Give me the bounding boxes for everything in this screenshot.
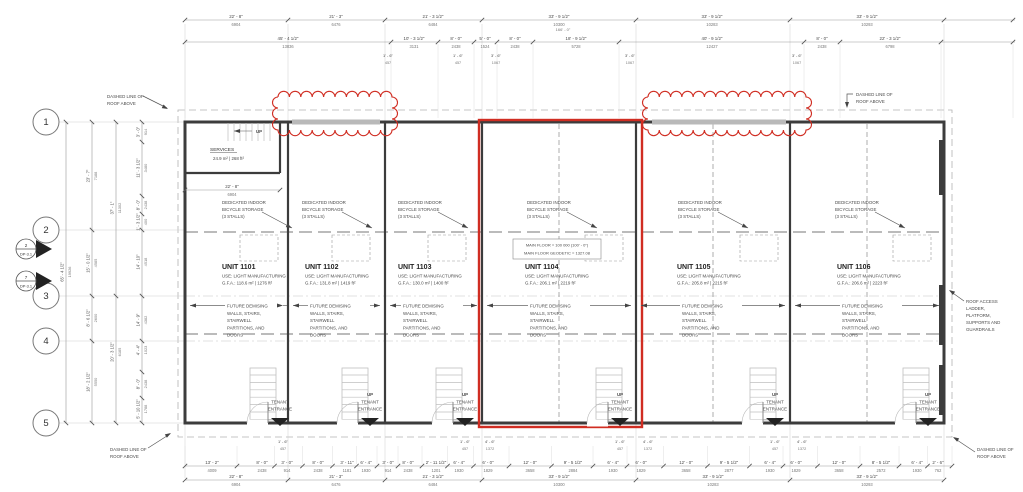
dimension-label-mm: 12427	[706, 44, 718, 49]
tenant-entrance-label: TENANT	[611, 400, 629, 405]
door-opening	[895, 420, 916, 427]
dimension-label-mm: 1067	[492, 61, 500, 65]
dimension-label-feet: 6' - 4"	[764, 460, 776, 465]
up-label: UP	[367, 392, 373, 397]
bike-storage-note: DEDICATED INDOOR	[398, 200, 442, 205]
exterior-wall	[185, 122, 944, 423]
door-opening	[337, 420, 358, 427]
future-demising-note: WALLS, STAIRS,	[403, 311, 437, 316]
dimension-label-mm: 10283	[707, 482, 719, 487]
dimension-label-feet: 33' - 9 1/2"	[549, 474, 570, 479]
dimension-label-feet: 12' - 0"	[832, 460, 846, 465]
unit-name-label: UNIT 1105	[677, 264, 711, 271]
bike-storage-note: DEDICATED INDOOR	[835, 200, 879, 205]
dimension-label-mm: 1930	[361, 468, 371, 473]
dimension-label-feet: 8' - 0"	[136, 378, 141, 389]
main-floor-note: MAIN FLOOR GEODETIC = 1327.08	[524, 251, 591, 256]
unit-name-label: UNIT 1106	[837, 264, 871, 271]
grid-bubble-number: 5	[43, 418, 48, 429]
dimension-label-feet: 14' - 10"	[136, 254, 141, 270]
dimension-label-feet: 6' - 4"	[607, 460, 619, 465]
dimension-label-mm: 457	[455, 61, 461, 65]
dimension-label-feet: 13' - 2"	[205, 460, 219, 465]
dimension-label-feet: 4' - 6"	[485, 439, 496, 444]
dimension-label-mm: 4009	[207, 468, 217, 473]
door-opening	[587, 420, 608, 427]
dimension-label-mm: 13836	[282, 44, 294, 49]
bike-storage-note: BICYCLE STORAGE	[678, 207, 719, 212]
dimension-label-mm: 6904	[231, 482, 241, 487]
dimension-label-mm: 400	[143, 218, 148, 225]
dimension-label-mm: 762	[935, 468, 943, 473]
bike-storage-note: DEDICATED INDOOR	[302, 200, 346, 205]
leader-arrowhead	[162, 105, 168, 109]
unit-use-label: USE: LIGHT MANUFACTURING	[525, 274, 589, 279]
dimension-label-feet: 3' - 6"	[625, 53, 636, 58]
door-opening	[432, 420, 453, 427]
dimension-label-mm: 1829	[636, 468, 646, 473]
dimension-label-feet: 5' - 0"	[479, 36, 491, 41]
floor-plan-drawing: 22' - 8"690421' - 3"647621' - 3 1/2"6484…	[0, 0, 1023, 492]
dimension-label-feet: 1' - 6"	[770, 439, 781, 444]
dimension-label-feet: 1' - 6"	[453, 53, 464, 58]
unit-gfa-label: G.F.A.: 118.6 m² | 1276 ft²	[222, 281, 273, 286]
dimension-label-feet: 2' - 6"	[932, 460, 944, 465]
unit-gfa-label: G.F.A.: 131.8 m² | 1419 ft²	[305, 281, 356, 286]
leader-arrowhead	[742, 224, 748, 228]
bike-storage-note: (3 STALLS)	[302, 214, 325, 219]
dimension-label-feet: 22' - 3 1/2"	[880, 36, 901, 41]
future-demising-note: PARTITIONS, AND	[403, 325, 440, 330]
tenant-entrance-label: ENTRANCE	[268, 407, 292, 412]
dimension-label-mm: 457	[462, 447, 468, 451]
dimension-label-mm: 1524	[480, 44, 490, 49]
dimension-label-feet: 22' - 8"	[229, 14, 243, 19]
dimension-label-feet: 1' - 3 1/2"	[136, 213, 141, 231]
dimension-label-mm: 3131	[409, 44, 419, 49]
section-marker-sheet: DP-3.1	[20, 284, 32, 289]
dimension-label-feet: 9' - 5 1/2"	[720, 460, 739, 465]
future-demising-note: DOORS	[530, 333, 546, 338]
bike-storage-note: DEDICATED INDOOR	[222, 200, 266, 205]
dimension-label-mm: 1372	[798, 447, 806, 451]
future-demising-note: FUTURE DEMISING	[842, 304, 883, 309]
tenant-entrance-label: ENTRANCE	[916, 407, 940, 412]
dimension-label-mm: 19926	[67, 267, 72, 278]
grid-lines	[59, 24, 944, 478]
dimension-label-feet: 12' - 0"	[523, 460, 537, 465]
revision-cloud	[273, 91, 398, 135]
roof-access-note: PLATFORM,	[966, 313, 991, 318]
dimension-label-feet: 3' - 11"	[340, 460, 354, 465]
leader-arrowhead	[779, 304, 785, 308]
dimension-label-feet: 15' - 0 1/2"	[86, 253, 91, 273]
bike-storage-area	[893, 235, 931, 261]
leader-arrowhead	[795, 304, 801, 308]
roof-access-note: SUPPORTS AND	[966, 320, 1000, 325]
bike-storage-area	[740, 235, 778, 261]
dimension-label-feet: 33' - 9 1/2"	[549, 14, 570, 19]
dimension-label-mm: 6476	[331, 22, 341, 27]
future-demising-note: WALLS, STAIRS,	[842, 311, 876, 316]
dimension-label-feet: 1' - 6"	[460, 439, 471, 444]
bike-storage-note: DEDICATED INDOOR	[527, 200, 571, 205]
dimension-label-feet: 8' - 0"	[312, 460, 324, 465]
unit-name-label: UNIT 1103	[398, 264, 432, 271]
dimension-label-mm: 457	[280, 447, 286, 451]
dimension-label-mm: 2438	[510, 44, 520, 49]
future-demising-note: FUTURE DEMISING	[227, 304, 268, 309]
future-demising-note: FUTURE DEMISING	[530, 304, 571, 309]
dimension-label-feet: 4' - 6"	[797, 439, 808, 444]
bike-storage-note: BICYCLE STORAGE	[398, 207, 439, 212]
dimension-label-feet: 6' - 4"	[453, 460, 465, 465]
future-demising-note: DOORS	[310, 333, 326, 338]
dimension-label-feet: 1' - 6"	[278, 439, 289, 444]
dimension-label-mm: 3658	[834, 468, 844, 473]
bike-storage-area	[332, 235, 370, 261]
dimension-label-feet: 40' - 9 1/2"	[702, 36, 723, 41]
services-label: SERVICES	[210, 147, 234, 153]
dimension-label-feet: 8' - 0"	[450, 36, 462, 41]
dimension-label-feet: 14' - 9"	[136, 313, 141, 326]
dimension-label-feet: 8' - 0"	[256, 460, 268, 465]
main-floor-note: MAIN FLOOR = 100 000 (100' - 0")	[526, 243, 589, 248]
dimension-label-mm: 6476	[331, 482, 341, 487]
up-label: UP	[462, 392, 468, 397]
dimension-label-mm: 4518	[143, 258, 148, 267]
future-demising-note: WALLS, STAIRS,	[682, 311, 716, 316]
tenant-entrance-label: ENTRANCE	[358, 407, 382, 412]
floor-plan-sheet: 22' - 8"690421' - 3"647621' - 3 1/2"6484…	[0, 0, 1023, 492]
roof-note: DASHED LINE OF	[110, 447, 147, 452]
future-demising-note: STAIRWELL	[842, 318, 867, 323]
future-demising-note: DOORS	[403, 333, 419, 338]
dimension-label-mm: 2438	[403, 468, 413, 473]
dimension-label-feet: 6' - 0"	[790, 460, 802, 465]
unit-name-label: UNIT 1102	[305, 264, 339, 271]
dimension-label-feet: 37' - 1"	[110, 201, 115, 214]
unit-use-label: USE: LIGHT MANUFACTURING	[305, 274, 369, 279]
up-label: UP	[256, 129, 262, 134]
tenant-entrance-label: ENTRANCE	[763, 407, 787, 412]
dimension-label-feet: 5' - 10 1/2"	[136, 399, 141, 419]
dimension-label-mm: 10293	[861, 482, 873, 487]
leader-arrowhead	[462, 224, 468, 228]
dimension-label-feet: 18' - 2 1/2"	[86, 372, 91, 392]
tenant-entrance-label: TENANT	[271, 400, 289, 405]
bike-storage-note: (3 STALLS)	[835, 214, 858, 219]
door-opening	[247, 420, 268, 427]
roof-note: ROOF ABOVE	[977, 454, 1006, 459]
leader-arrowhead	[591, 224, 597, 228]
unit-use-label: USE: LIGHT MANUFACTURING	[837, 274, 901, 279]
future-demising-note: DOORS	[227, 333, 243, 338]
up-label: UP	[925, 392, 931, 397]
dimension-label-feet: 12' - 0"	[679, 460, 693, 465]
dimension-label-mm: 1829	[483, 468, 493, 473]
dimension-label-feet: 3' - 0"	[281, 460, 293, 465]
dimension-label-feet: 22' - 8"	[229, 474, 243, 479]
dimension-label-mm: 1930	[912, 468, 922, 473]
dimension-label-feet: 8' - 5 1/2"	[872, 460, 891, 465]
future-demising-note: WALLS, STAIRS,	[310, 311, 344, 316]
dimension-label-mm: 457	[385, 61, 391, 65]
dimension-label-mm: 3480	[143, 163, 148, 172]
future-demising-note: STAIRWELL	[403, 318, 428, 323]
dimension-label-mm: 1930	[454, 468, 464, 473]
leader-arrowhead	[366, 224, 372, 228]
dimension-label-feet: 8' - 0"	[136, 199, 141, 210]
dimension-label-feet: 6' - 0"	[635, 460, 647, 465]
dimension-label-feet: 21' - 3 1/2"	[423, 474, 444, 479]
dimension-label-feet: 10' - 3 1/2"	[404, 36, 425, 41]
dimension-label-feet: 3' - 0"	[382, 460, 394, 465]
leader-arrowhead	[190, 304, 196, 308]
dimension-label-mm: 2600	[93, 313, 98, 322]
roof-access-note: LADDER,	[966, 306, 985, 311]
dimension-label-mm: 914	[143, 128, 148, 135]
grid-bubble-number: 2	[43, 225, 48, 236]
future-demising-note: PARTITIONS, AND	[227, 325, 264, 330]
dimension-label-feet: 22' - 8"	[225, 184, 239, 189]
future-demising-note: FUTURE DEMISING	[310, 304, 351, 309]
dimension-label-mm: 914	[385, 468, 393, 473]
unit-name-label: UNIT 1101	[222, 264, 256, 271]
tenant-entrance-label: TENANT	[361, 400, 379, 405]
dimension-label-feet: 3' - 6"	[491, 53, 502, 58]
unit-gfa-label: G.F.A.: 206.6 m² | 2223 ft²	[837, 281, 888, 286]
dimension-label-mm: 1930	[765, 468, 775, 473]
revision-cloud	[643, 91, 812, 135]
dimension-label-feet: 23' - 7"	[86, 169, 91, 182]
dimension-label-feet: 9' - 5 1/2"	[564, 460, 583, 465]
dimension-label-feet: 33' - 9 1/2"	[857, 14, 878, 19]
dimension-label-mm: 2572	[876, 468, 886, 473]
leader-arrowhead	[471, 304, 477, 308]
demising-walls	[288, 122, 790, 423]
dimension-label-mm: 1181	[343, 468, 353, 473]
generated-annotations: 22' - 8"690421' - 3"647621' - 3 1/2"6484…	[16, 14, 1015, 487]
dimension-label-mm: 1372	[644, 447, 652, 451]
future-demising-note: PARTITIONS, AND	[310, 325, 347, 330]
unit-gfa-label: G.F.A.: 205.8 m² | 2215 ft²	[677, 281, 728, 286]
dimension-label-feet: 8' - 0"	[402, 460, 414, 465]
grid-bubble-number: 3	[43, 291, 48, 302]
dimension-label-mm: 2438	[257, 468, 267, 473]
dimension-label-mm: 1788	[143, 405, 148, 414]
future-demising-note: PARTITIONS, AND	[530, 325, 567, 330]
dimension-label-feet: 21' - 3"	[329, 474, 343, 479]
bike-storage-note: (3 STALLS)	[678, 214, 701, 219]
roof-note: ROOF ABOVE	[110, 454, 139, 459]
dimension-label-feet: 6' - 4"	[911, 460, 923, 465]
bike-storage-note: BICYCLE STORAGE	[527, 207, 568, 212]
future-demising-note: WALLS, STAIRS,	[227, 311, 261, 316]
bike-storage-area	[240, 235, 278, 261]
dimension-label-feet: 33' - 9 1/2"	[702, 14, 723, 19]
dimension-label-feet: 8' - 0"	[509, 36, 521, 41]
dimension-label-feet: 8' - 0"	[816, 36, 828, 41]
future-demising-note: PARTITIONS, AND	[842, 325, 879, 330]
bike-storage-note: BICYCLE STORAGE	[222, 207, 263, 212]
future-demising-note: WALLS, STAIRS,	[530, 311, 564, 316]
dimension-label-mm: 2877	[724, 468, 734, 473]
dimension-label-mm: 1829	[791, 468, 801, 473]
dimension-label-mm: 2438	[451, 44, 461, 49]
dimension-label-mm: 10293	[861, 22, 873, 27]
grid-bubble-number: 4	[43, 336, 48, 347]
unit-gfa-label: G.F.A.: 206.1 m² | 2219 ft²	[525, 281, 576, 286]
leader-arrowhead	[487, 304, 493, 308]
dimension-label-mm: 6904	[231, 22, 241, 27]
door-opening	[742, 420, 763, 427]
dimension-label-mm: 2884	[568, 468, 578, 473]
tenant-entrance-label: ENTRANCE	[608, 407, 632, 412]
dimension-label-mm: 1067	[626, 61, 634, 65]
dimension-label-mm: 6904	[227, 192, 237, 197]
leader-arrowhead	[625, 304, 631, 308]
leader-arrowhead	[374, 304, 380, 308]
up-label: UP	[772, 392, 778, 397]
dimension-label-mm: 5550	[93, 377, 98, 386]
dimension-label-mm: 3658	[525, 468, 535, 473]
leader-arrowhead	[933, 304, 939, 308]
dimension-label-mm: 914	[284, 468, 292, 473]
dimension-label-mm: 1372	[486, 447, 494, 451]
leader-arrowhead	[293, 304, 299, 308]
dimension-label-feet: 4' - 6"	[643, 439, 654, 444]
dimension-label-mm: 6185	[117, 348, 122, 357]
bike-storage-note: BICYCLE STORAGE	[835, 207, 876, 212]
dimension-label-feet: 3' - 6"	[792, 53, 803, 58]
roof-note: ROOF ABOVE	[856, 99, 885, 104]
bike-storage-note: (3 STALLS)	[398, 214, 421, 219]
dimension-label-feet: 1' - 6"	[615, 439, 626, 444]
dimension-label-feet: 2' - 11 1/2"	[426, 460, 447, 465]
dimension-label-mm: 2438	[313, 468, 323, 473]
future-demising-note: STAIRWELL	[682, 318, 707, 323]
bike-storage-note: DEDICATED INDOOR	[678, 200, 722, 205]
roof-note: ROOF ABOVE	[107, 101, 136, 106]
future-demising-note: DOORS	[842, 333, 858, 338]
dimension-label-mm: 457	[772, 447, 778, 451]
tenant-entrance-label: TENANT	[766, 400, 784, 405]
future-demising-note: STAIRWELL	[310, 318, 335, 323]
unit-use-label: USE: LIGHT MANUFACTURING	[398, 274, 462, 279]
dimension-label-mm: 6484	[428, 482, 438, 487]
dimension-label-feet: 20' - 3 1/2"	[110, 342, 115, 362]
dimension-label-mm: 6484	[428, 22, 438, 27]
dimension-label-mm: 2438	[143, 380, 148, 389]
dimension-label-mm: 2438	[143, 201, 148, 210]
roof-access-note: GUARDRAILS	[966, 327, 995, 332]
unit-name-label: UNIT 1104	[525, 264, 559, 271]
dimension-label-mm: 10283	[706, 22, 718, 27]
dimension-label-feet: 18' - 9 1/2"	[566, 36, 587, 41]
dimension-label-feet: 11' - 3 1/2"	[136, 158, 141, 178]
dimension-label-feet: 33' - 9 1/2"	[857, 474, 878, 479]
bike-storage-note: (3 STALLS)	[527, 214, 550, 219]
future-demising-note: STAIRWELL	[227, 318, 252, 323]
dimension-label-mm: 1201	[431, 468, 441, 473]
future-demising-note: DOORS	[682, 333, 698, 338]
unit-gfa-label: G.F.A.: 130.0 m² | 1400 ft²	[398, 281, 449, 286]
dimension-label-mm: 1067	[793, 61, 801, 65]
dimension-label-feet: 33' - 9 1/2"	[703, 474, 724, 479]
leader-arrowhead	[277, 304, 283, 308]
dimension-label-mm: 4382	[143, 316, 148, 325]
dimension-label-feet: 6' - 4"	[360, 460, 372, 465]
section-marker-number: 7	[25, 275, 28, 280]
tenant-entrance-label: TENANT	[919, 400, 937, 405]
bike-storage-note: (3 STALLS)	[222, 214, 245, 219]
leader-arrowhead	[234, 129, 240, 133]
leader-arrowhead	[390, 304, 396, 308]
dimension-label-mm: 7188	[93, 172, 98, 181]
unit-use-label: USE: LIGHT MANUFACTURING	[222, 274, 286, 279]
dimension-label-feet: 6' - 0"	[482, 460, 494, 465]
roof-note: DASHED LINE OF	[977, 447, 1014, 452]
tenant-entrance-label: ENTRANCE	[453, 407, 477, 412]
dimension-label-mm: 3658	[681, 468, 691, 473]
dimension-label-mm: 1023	[143, 346, 148, 355]
roof-note: DASHED LINE OF	[107, 94, 144, 99]
dimension-label-mm: 2438	[817, 44, 827, 49]
section-marker-sheet: DP-3.1	[20, 252, 32, 257]
dimension-label-mm: 1930	[608, 468, 618, 473]
section-marker-number: 2	[25, 243, 28, 248]
unit-use-label: USE: LIGHT MANUFACTURING	[677, 274, 741, 279]
dimension-label-feet: 8' - 6 1/2"	[86, 309, 91, 327]
grid-bubble-number: 1	[43, 117, 48, 128]
future-demising-note: STAIRWELL	[530, 318, 555, 323]
leader-arrowhead	[899, 224, 905, 228]
dimension-label-feet: 21' - 3"	[329, 14, 343, 19]
leader-arrowhead	[845, 102, 849, 108]
future-demising-note: PARTITIONS, AND	[682, 325, 719, 330]
dimension-label-feet: 1' - 6"	[383, 53, 394, 58]
dimension-label-mm: 5728	[571, 44, 581, 49]
dimension-label-feet: 65' - 4 1/2"	[60, 262, 65, 282]
future-demising-note: FUTURE DEMISING	[682, 304, 723, 309]
roof-note: DASHED LINE OF	[856, 92, 893, 97]
dimension-overall: 166' - 0"	[556, 27, 571, 32]
dimension-label-mm: 11302	[117, 203, 122, 214]
bike-storage-note: BICYCLE STORAGE	[302, 207, 343, 212]
dimension-label-mm: 457	[617, 447, 623, 451]
dimension-label-mm: 6798	[885, 44, 895, 49]
dimension-label-feet: 3' - 0"	[136, 126, 141, 137]
up-label: UP	[617, 392, 623, 397]
dimension-label-mm: 10300	[553, 482, 565, 487]
roof-access-note: ROOF ACCESS	[966, 299, 998, 304]
dimension-label-mm: 4585	[93, 259, 98, 268]
future-demising-note: FUTURE DEMISING	[403, 304, 444, 309]
services-area-label: 24.9 m² | 268 ft²	[213, 156, 244, 161]
bike-storage-area	[428, 235, 466, 261]
tenant-entrance-label: TENANT	[456, 400, 474, 405]
dimension-label-feet: 21' - 3 1/2"	[423, 14, 444, 19]
dimension-label-feet: 4' - 4"	[136, 344, 141, 355]
dimension-label-feet: 45' - 4 1/2"	[278, 36, 299, 41]
